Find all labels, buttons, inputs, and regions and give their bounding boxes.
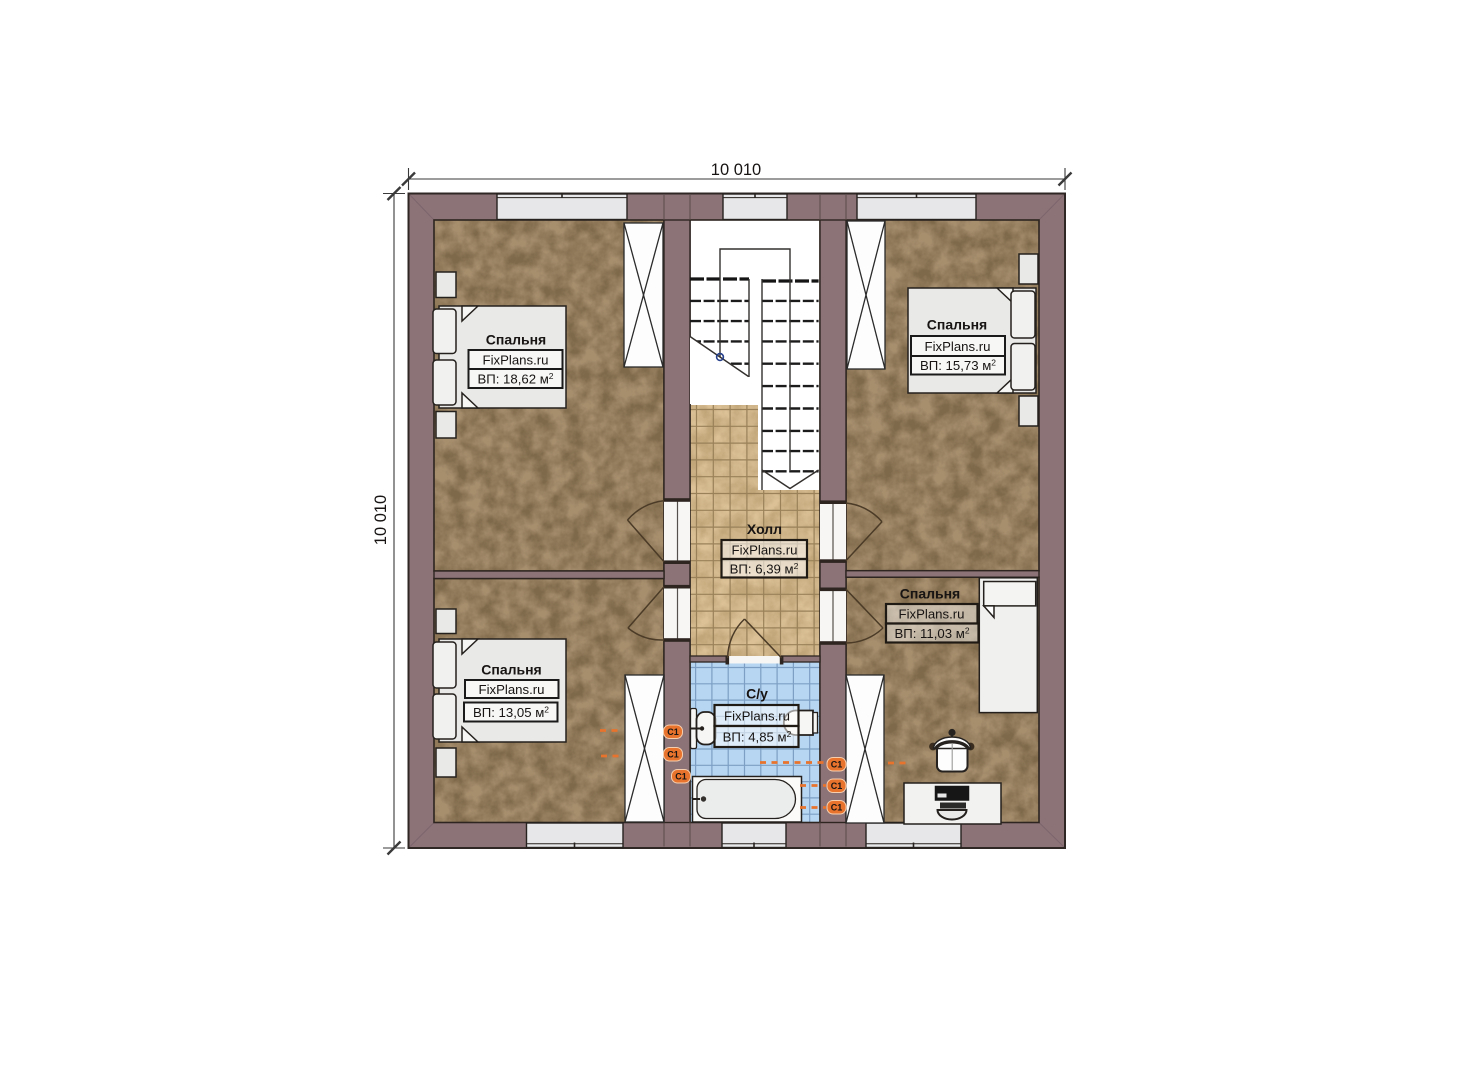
svg-text:С1: С1 — [831, 781, 843, 791]
svg-text:ВП: 15,73 м2: ВП: 15,73 м2 — [920, 358, 996, 374]
svg-text:Спальня: Спальня — [481, 662, 541, 678]
svg-text:Спальня: Спальня — [486, 332, 546, 348]
svg-text:FixPlans.ru: FixPlans.ru — [724, 709, 790, 724]
svg-text:Холл: Холл — [747, 521, 782, 537]
svg-text:С1: С1 — [667, 727, 679, 737]
svg-text:ВП: 6,39 м2: ВП: 6,39 м2 — [730, 561, 799, 577]
svg-text:ВП: 4,85 м2: ВП: 4,85 м2 — [723, 729, 792, 745]
svg-text:FixPlans.ru: FixPlans.ru — [925, 339, 991, 354]
svg-text:С1: С1 — [831, 760, 843, 770]
svg-text:ВП: 13,05 м2: ВП: 13,05 м2 — [473, 705, 549, 721]
svg-text:FixPlans.ru: FixPlans.ru — [483, 353, 549, 368]
svg-text:10 010: 10 010 — [372, 495, 390, 545]
svg-text:FixPlans.ru: FixPlans.ru — [899, 607, 965, 622]
svg-text:ВП: 18,62 м2: ВП: 18,62 м2 — [477, 371, 553, 387]
svg-text:FixPlans.ru: FixPlans.ru — [479, 682, 545, 697]
svg-text:ВП: 11,03 м2: ВП: 11,03 м2 — [894, 626, 969, 642]
svg-text:С1: С1 — [667, 750, 679, 760]
svg-text:С1: С1 — [831, 803, 843, 813]
svg-text:FixPlans.ru: FixPlans.ru — [732, 543, 798, 558]
svg-text:С/у: С/у — [746, 686, 768, 702]
svg-text:10 010: 10 010 — [711, 161, 761, 179]
svg-text:Спальня: Спальня — [927, 317, 987, 333]
svg-text:С1: С1 — [675, 772, 687, 782]
svg-text:Спальня: Спальня — [900, 586, 960, 602]
